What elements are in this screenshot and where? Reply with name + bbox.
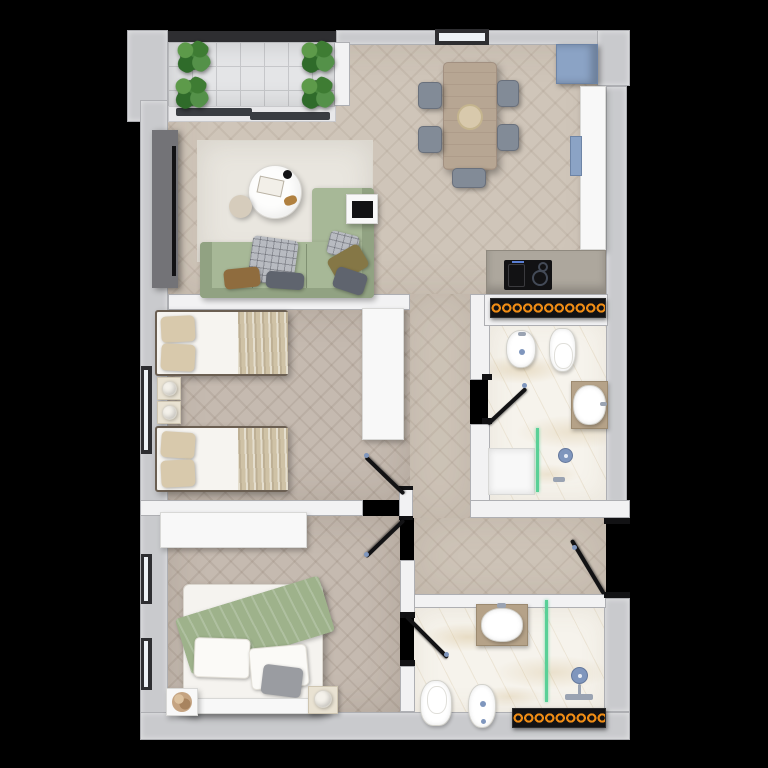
master-pillow [193,637,250,679]
master-headboard [176,698,330,714]
side-tray-table [346,194,378,224]
kitchen-sink [570,136,582,176]
sink-faucet-top [600,402,607,406]
bidet-bottom [468,684,496,728]
bed-blanket [238,428,288,490]
wardrobe-master [160,512,307,548]
cooktop-burner-large [532,270,548,286]
wall-bath-bottom-left-b [400,666,415,712]
dining-chair [452,168,486,188]
bed-blanket [238,312,288,374]
window-glass [144,557,148,601]
lamp-master [314,690,332,708]
sofa-seam [306,244,307,288]
toilet-bottom [420,680,452,726]
wall-bath-top-bottom [470,500,630,518]
dried-plant [172,692,192,712]
door-handle-bathroom-bottom [444,652,449,657]
window-glass [144,641,148,687]
dining-centerpiece [457,104,483,130]
door-handle-twin [364,453,369,458]
window-dining [435,29,489,45]
door-jamb-cap [604,592,630,598]
cooktop-controls [512,261,524,263]
window-sill [439,33,485,41]
twin-bed-2 [155,426,288,492]
window-master-1 [141,554,152,604]
door-jamb-cap [604,518,630,524]
bed-pillow [160,431,196,459]
wall-bath-bottom-left-a [400,560,415,618]
bidet-drain [519,349,525,355]
radiator-top [490,298,606,318]
toilet-top [549,328,576,372]
coffee-table-mug [283,170,292,179]
bidet-top [506,330,536,368]
floor-plan-render [0,0,768,768]
shower-glass-bottom [545,600,548,702]
radiator-bottom [512,708,606,728]
bidet-faucet [518,332,526,336]
lamp-twin-1 [162,381,177,396]
sofa-pillow-brown [223,266,261,290]
shower-valve-bottom [565,694,593,700]
wall-bath-top-left-b [470,424,490,502]
sofa-armrest [200,242,212,298]
wardrobe-twin [362,308,404,440]
bed-pillow [160,315,195,343]
fridge [556,44,598,84]
door-handle-master [364,552,369,557]
door-jamb-cap [400,660,415,666]
door-handle-entrance [572,545,577,550]
toilet-seat [554,343,573,369]
wall-right-top [597,30,630,86]
shower-head-bottom [571,667,588,684]
shower-head-center [578,674,582,678]
master-cushion-gray [260,664,303,699]
balcony-plant [298,40,336,74]
laptop [352,201,373,218]
shower-tray-top [488,448,535,495]
sink-faucet-bottom [497,603,506,608]
sink-bottom [481,608,523,642]
shower-head-top [558,448,573,463]
bed-pillow [160,459,195,488]
wall-balcony-right [334,42,350,106]
dining-chair [418,126,442,153]
floor-hallway [410,294,470,518]
shower-valve-top [553,477,565,482]
shower-glass-top [536,428,539,492]
wall-right-bottom [604,598,630,712]
pouf [229,195,252,218]
tv-screen [172,146,176,276]
tv-unit [152,130,178,288]
twin-bed-1 [155,310,288,376]
sofa-pillow-gray [265,271,304,291]
balcony-plant [298,76,336,110]
cooktop-burner-left [508,264,525,287]
bidet-faucet [481,719,486,724]
dining-chair [418,82,442,109]
kitchen-counter-tall [580,86,606,250]
door-handle-bathroom-top [522,383,527,388]
balcony-slider-panel [250,112,330,120]
window-master-2 [141,638,152,690]
bidet-drain [480,701,486,707]
wall-right-mid [606,86,627,505]
dining-chair [497,80,519,107]
lamp-twin-2 [162,405,177,420]
balcony-plant [172,76,210,110]
toilet-seat [427,686,447,714]
cooktop [504,260,552,290]
floor-entry-vestibule [414,518,606,594]
window-twin-bedroom [141,366,152,454]
door-jamb-cap [482,374,492,380]
dining-chair [497,124,519,151]
balcony-plant [174,40,212,74]
window-glass [144,370,148,450]
shower-head-center [564,454,568,458]
bed-pillow [160,343,195,372]
cooktop-burner-small [538,262,548,272]
